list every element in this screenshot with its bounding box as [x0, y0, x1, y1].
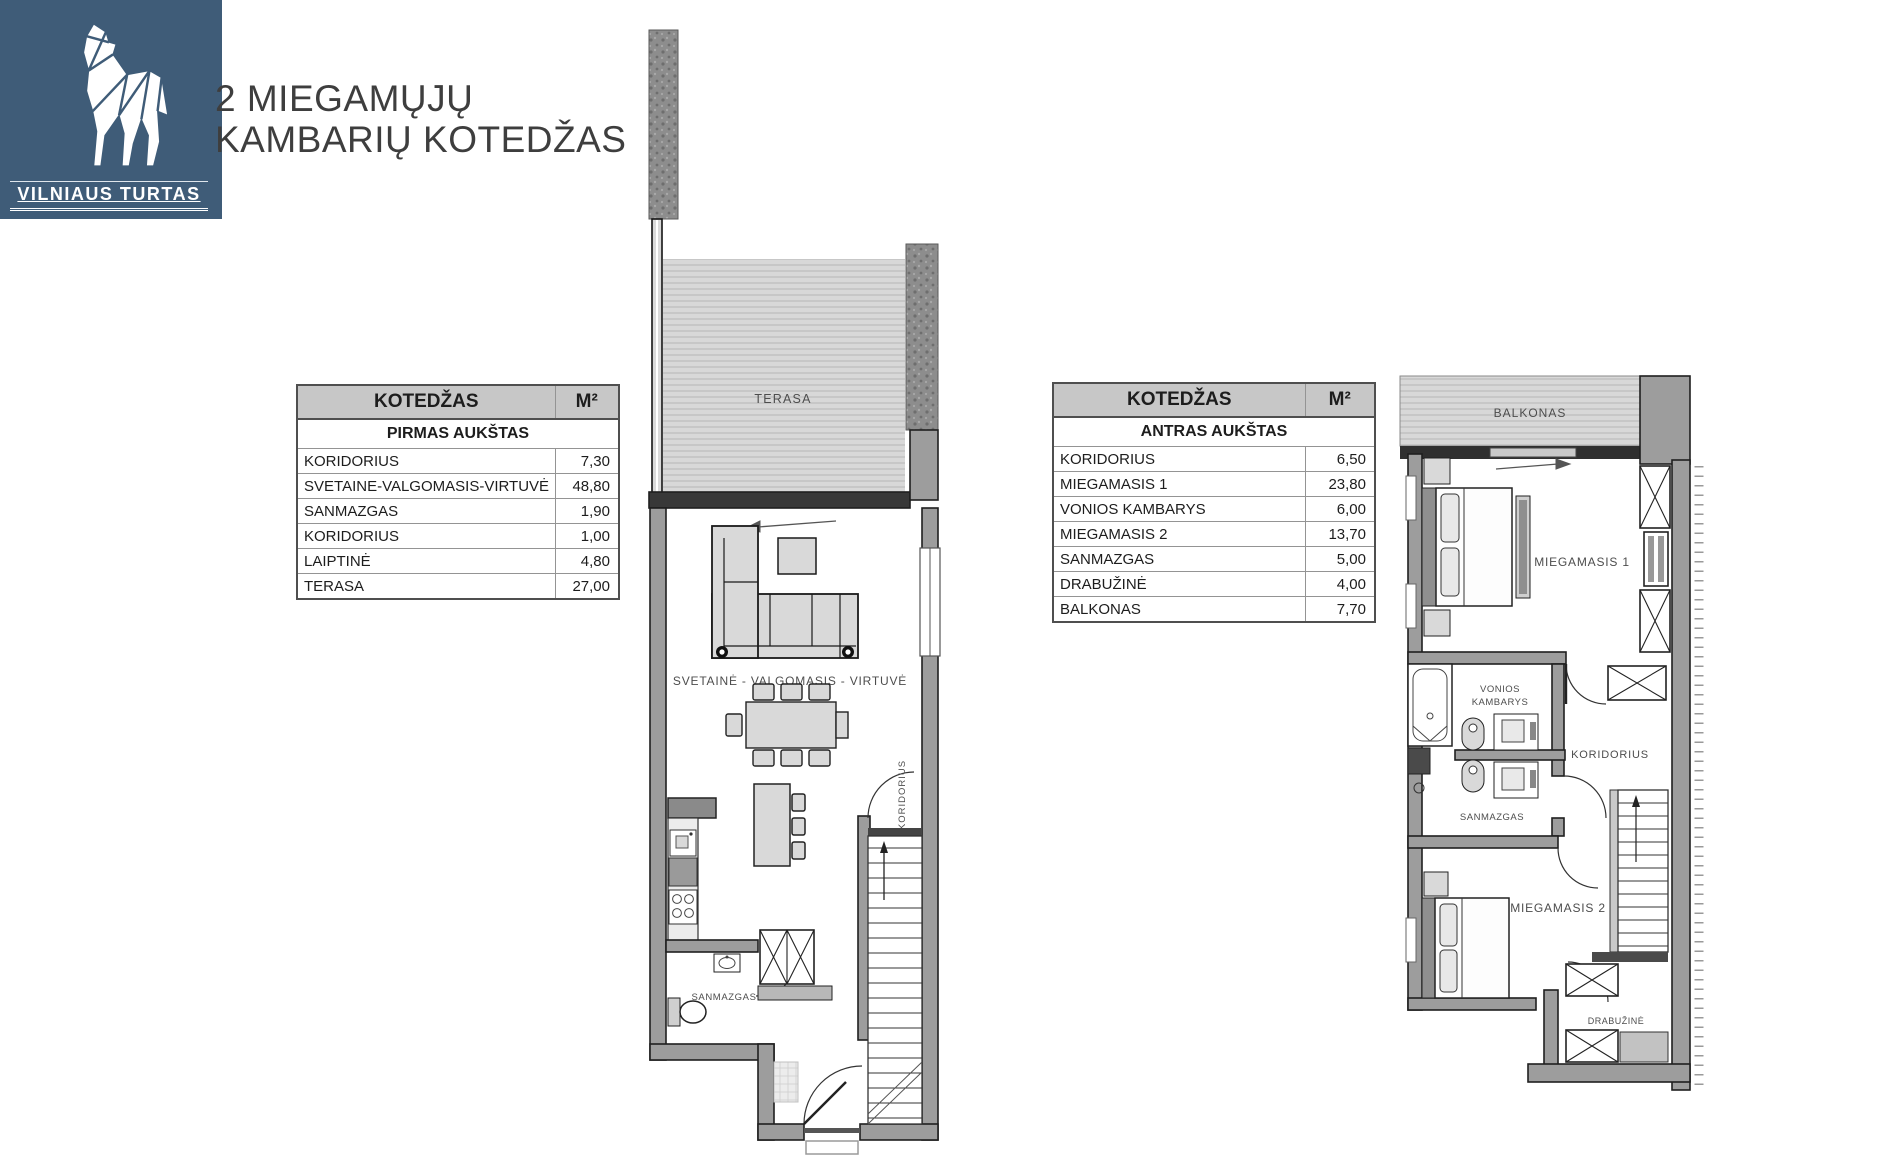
bedroom2-label: MIEGAMASIS 2	[1510, 901, 1606, 915]
balcony: BALKONAS	[1400, 376, 1654, 469]
room-label: DRABUŽINĖ	[1053, 572, 1305, 597]
floor-name: PIRMAS AUKŠTAS	[297, 419, 619, 449]
closet-room: DRABUŽINĖ	[1566, 962, 1668, 1062]
room-area: 48,80	[555, 474, 619, 499]
bed-1	[1422, 458, 1530, 636]
room-label: MIEGAMASIS 1	[1053, 472, 1305, 497]
room-label: LAIPTINĖ	[297, 549, 555, 574]
room-area: 1,00	[555, 524, 619, 549]
floor-subheader-row: PIRMAS AUKŠTAS	[297, 419, 619, 449]
table-row: LAIPTINĖ 4,80	[297, 549, 619, 574]
table-title: KOTEDŽAS	[1053, 383, 1305, 417]
wardrobe	[758, 930, 832, 1000]
table-row: KORIDORIUS 6,50	[1053, 447, 1375, 472]
room-area: 4,80	[555, 549, 619, 574]
dresser	[1620, 1032, 1668, 1062]
window-icon	[1406, 584, 1416, 628]
door-mat	[774, 1062, 798, 1102]
room-label: BALKONAS	[1053, 597, 1305, 623]
room-area: 27,00	[555, 574, 619, 600]
entry-step	[806, 1141, 858, 1154]
dining-table	[726, 684, 848, 766]
staircase	[868, 828, 922, 1124]
area-table-second-floor: KOTEDŽAS M² ANTRAS AUKŠTAS KORIDORIUS 6,…	[1052, 382, 1376, 623]
table-row: TERASA 27,00	[297, 574, 619, 600]
nightstand	[1424, 610, 1450, 636]
room-label: MIEGAMASIS 2	[1053, 522, 1305, 547]
table-row: DRABUŽINĖ 4,00	[1053, 572, 1375, 597]
table-row: KORIDORIUS 7,30	[297, 449, 619, 474]
bedroom2-door-arc	[1558, 848, 1598, 888]
bathroom-label-line1: VONIOS	[1480, 684, 1520, 695]
room-label: VONIOS KAMBARYS	[1053, 497, 1305, 522]
room-label: KORIDORIUS	[297, 449, 555, 474]
room-label: KORIDORIUS	[1053, 447, 1305, 472]
room-label: TERASA	[297, 574, 555, 600]
area-table-first-floor: KOTEDŽAS M² PIRMAS AUKŠTAS KORIDORIUS 7,…	[296, 384, 620, 600]
page-title: 2 MIEGAMŲJŲ KAMBARIŲ KOTEDŽAS	[215, 78, 626, 160]
table-row: BALKONAS 7,70	[1053, 597, 1375, 623]
room-area: 6,00	[1305, 497, 1375, 522]
unit-header: M²	[1305, 383, 1375, 417]
page-title-line1: 2 MIEGAMŲJŲ	[215, 78, 626, 119]
shaft	[1408, 748, 1430, 774]
table-title: KOTEDŽAS	[297, 385, 555, 419]
kitchen-island	[754, 784, 805, 866]
page: VILNIAUS TURTAS 2 MIEGAMŲJŲ KAMBARIŲ KOT…	[0, 0, 1900, 1165]
vanity-sink-icon	[1494, 762, 1538, 798]
wardrobe-column	[1640, 466, 1670, 652]
balcony-door-arrow-icon	[1496, 459, 1570, 469]
room-area: 7,70	[1305, 597, 1375, 623]
unit-header: M²	[555, 385, 619, 419]
fence-strip-top	[649, 30, 678, 219]
window-icon	[1406, 476, 1416, 520]
page-title-line2: KAMBARIŲ KOTEDŽAS	[215, 119, 626, 160]
table-row: KORIDORIUS 1,00	[297, 524, 619, 549]
closet-label: DRABUŽINĖ	[1588, 1016, 1645, 1026]
bidet-icon	[1462, 760, 1484, 792]
terrace: TERASA	[663, 259, 905, 499]
room-label: KORIDORIUS	[297, 524, 555, 549]
room-area: 4,00	[1305, 572, 1375, 597]
wc-door-arc	[1564, 776, 1606, 818]
vanity-sink-icon	[1494, 714, 1538, 750]
table-row: SVETAINE-VALGOMASIS-VIRTUVĖ 48,80	[297, 474, 619, 499]
fence-strip-right	[906, 244, 938, 430]
table-header-row: KOTEDŽAS M²	[1053, 383, 1375, 417]
kitchen-counter	[668, 798, 716, 942]
corridor-label: KORIDORIUS	[1571, 749, 1649, 761]
bathroom: VONIOS KAMBARYS SANMAZGAS	[1408, 664, 1606, 823]
brand-text: VILNIAUS TURTAS	[10, 181, 208, 211]
bathtub-icon	[1408, 664, 1452, 746]
room-area: 23,80	[1305, 472, 1375, 497]
entrance-door	[804, 1066, 862, 1124]
room-area: 13,70	[1305, 522, 1375, 547]
floor-name: ANTRAS AUKŠTAS	[1053, 417, 1375, 447]
staircase	[1592, 790, 1668, 962]
logo-block: VILNIAUS TURTAS	[0, 0, 222, 219]
bathroom-label-line2: KAMBARYS	[1472, 697, 1529, 708]
oven-icon	[669, 858, 697, 886]
room-label: SANMAZGAS	[1053, 547, 1305, 572]
window-icon	[1406, 918, 1416, 962]
balcony-label: BALKONAS	[1494, 406, 1567, 420]
room-label: SANMAZGAS	[297, 499, 555, 524]
wolf-logo-icon	[48, 22, 180, 174]
nightstand	[1424, 458, 1450, 484]
stove-icon	[669, 890, 697, 924]
table-row: SANMAZGAS 5,00	[1053, 547, 1375, 572]
sliding-door-arrow-icon	[746, 521, 836, 532]
table-row: MIEGAMASIS 1 23,80	[1053, 472, 1375, 497]
nightstand	[1424, 872, 1448, 896]
floor-plan-first-floor: TERASA	[640, 25, 960, 1165]
bed-2	[1422, 872, 1509, 998]
washbasin-icon	[714, 954, 740, 972]
floor-plan-second-floor: BALKONAS	[1390, 370, 1720, 1098]
table-row: MIEGAMASIS 2 13,70	[1053, 522, 1375, 547]
floor-subheader-row: ANTRAS AUKŠTAS	[1053, 417, 1375, 447]
terrace-label: TERASA	[754, 392, 811, 406]
bedroom1-label: MIEGAMASIS 1	[1534, 555, 1630, 569]
wc-label: SANMAZGAS	[691, 992, 756, 1003]
coffee-table	[778, 538, 816, 574]
corridor-closet	[1608, 666, 1666, 700]
bedroom1-door-arc	[1566, 664, 1606, 704]
room-area: 5,00	[1305, 547, 1375, 572]
room-area: 6,50	[1305, 447, 1375, 472]
kitchen-sink-icon	[670, 830, 696, 856]
wc-label: SANMAZGAS	[1460, 812, 1524, 823]
room-area: 1,90	[555, 499, 619, 524]
toilet-icon	[1462, 718, 1484, 750]
table-row: SANMAZGAS 1,90	[297, 499, 619, 524]
corridor-label: KORIDORIUS	[897, 760, 908, 830]
table-row: VONIOS KAMBARYS 6,00	[1053, 497, 1375, 522]
room-label: SVETAINE-VALGOMASIS-VIRTUVĖ	[297, 474, 555, 499]
table-header-row: KOTEDŽAS M²	[297, 385, 619, 419]
room-area: 7,30	[555, 449, 619, 474]
entry-threshold	[804, 1128, 860, 1133]
